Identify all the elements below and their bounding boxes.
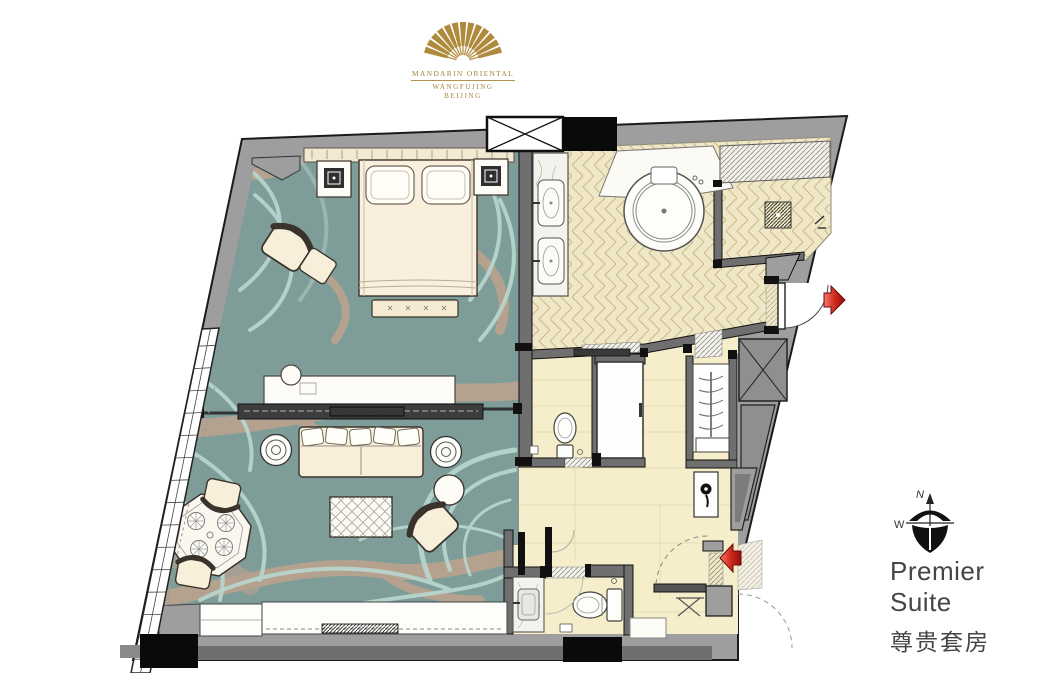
wall-closet-east xyxy=(729,354,737,462)
wall-closet-west xyxy=(686,356,693,462)
plan-title: Premier Suite 尊贵套房 xyxy=(890,556,1052,657)
door-jamb xyxy=(545,527,552,577)
compass-icon: N W xyxy=(894,489,954,553)
sofa-pillow xyxy=(349,428,371,446)
door-leaf xyxy=(778,283,785,329)
coffee-ottoman xyxy=(330,497,392,537)
plan-title-zh: 尊贵套房 xyxy=(890,623,1052,657)
desk-stool xyxy=(281,365,301,385)
side-door xyxy=(764,276,845,334)
bed-bench xyxy=(372,300,458,317)
sink xyxy=(533,238,564,284)
pillow xyxy=(366,166,414,204)
sofa-pillow xyxy=(397,428,420,446)
nightstand-left xyxy=(317,161,351,197)
round-table xyxy=(434,475,464,505)
wall-bedroom-bath xyxy=(519,147,532,465)
bottom-wall-stripe xyxy=(133,646,712,660)
brand-name: MANDARIN ORIENTAL xyxy=(393,69,533,78)
tv-screen xyxy=(322,624,398,633)
wardrobe-panel xyxy=(597,362,643,458)
door-leaf xyxy=(654,584,706,592)
brand-rule xyxy=(411,80,515,81)
pillow xyxy=(422,166,470,204)
toilet-tank xyxy=(607,589,622,621)
powder-vanity xyxy=(513,577,544,632)
door-jamb xyxy=(518,532,525,575)
credenza xyxy=(152,602,507,636)
sofa-pillow xyxy=(325,427,348,445)
plan-title-en: Premier Suite xyxy=(890,556,1052,618)
toilet-paper-holder xyxy=(530,446,538,454)
tv-screen xyxy=(330,407,404,416)
brand-location: WANGFUJING xyxy=(393,83,533,91)
console-table xyxy=(694,472,718,517)
sink xyxy=(533,180,564,226)
sofa xyxy=(299,427,423,477)
double-vanity xyxy=(533,153,568,296)
black-shaft xyxy=(563,117,617,151)
brand-city: BEIJING xyxy=(393,92,533,100)
compass-west-label: W xyxy=(894,519,905,531)
tub-caddy xyxy=(651,167,677,184)
sofa-pillow xyxy=(373,427,396,445)
closet xyxy=(693,364,729,452)
side-table-left xyxy=(261,435,292,466)
sofa-pillow xyxy=(301,428,324,447)
toilet-bowl xyxy=(554,413,576,443)
floor-niche xyxy=(630,618,666,638)
wall-shower-west xyxy=(714,184,722,264)
side-table-right xyxy=(431,437,462,468)
corridor-door-swing xyxy=(738,594,792,648)
nightstand-right xyxy=(474,159,508,195)
brand-logo: MANDARIN ORIENTAL WANGFUJING BEIJING xyxy=(393,12,533,100)
closet-drawer xyxy=(696,438,729,452)
compass-north-label: N xyxy=(916,489,924,501)
powder-toilet xyxy=(573,589,622,621)
service-shafts xyxy=(487,117,617,151)
toilet-tank xyxy=(557,445,573,458)
